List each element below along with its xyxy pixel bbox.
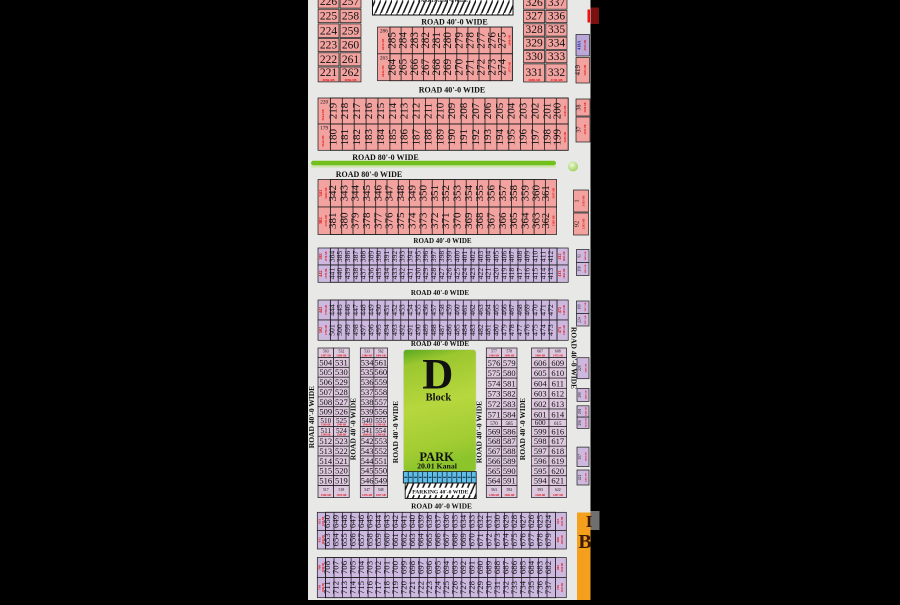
svg-text:20.01 Kanal: 20.01 Kanal bbox=[417, 461, 458, 470]
svg-text:3056-SB: 3056-SB bbox=[344, 78, 357, 82]
svg-text:612: 612 bbox=[551, 389, 564, 399]
svg-text:217: 217 bbox=[351, 102, 363, 119]
svg-text:183: 183 bbox=[363, 128, 375, 145]
svg-text:3434-SB: 3434-SB bbox=[585, 418, 588, 427]
svg-text:5185-SB: 5185-SB bbox=[552, 215, 556, 226]
svg-text:574: 574 bbox=[488, 378, 502, 388]
svg-text:575: 575 bbox=[488, 368, 501, 378]
svg-text:3056-SB: 3056-SB bbox=[322, 78, 335, 82]
svg-text:560: 560 bbox=[374, 367, 387, 377]
svg-text:1285-SB: 1285-SB bbox=[582, 219, 586, 230]
svg-text:473: 473 bbox=[546, 324, 555, 336]
svg-text:621: 621 bbox=[551, 476, 564, 486]
svg-text:188: 188 bbox=[423, 128, 435, 145]
svg-text:535: 535 bbox=[361, 367, 374, 377]
svg-text:356: 356 bbox=[486, 184, 498, 201]
svg-text:328: 328 bbox=[525, 24, 543, 36]
svg-text:370: 370 bbox=[452, 212, 464, 229]
svg-text:3288-SB: 3288-SB bbox=[528, 78, 541, 82]
svg-text:545: 545 bbox=[361, 466, 374, 476]
svg-text:192: 192 bbox=[470, 129, 482, 146]
svg-text:1: 1 bbox=[574, 199, 581, 202]
svg-text:2690-SB: 2690-SB bbox=[508, 35, 512, 46]
svg-text:421: 421 bbox=[578, 475, 582, 481]
svg-text:1405-SB: 1405-SB bbox=[563, 325, 566, 335]
svg-text:345: 345 bbox=[361, 184, 373, 201]
svg-text:358: 358 bbox=[508, 184, 520, 201]
svg-text:608: 608 bbox=[555, 349, 561, 353]
svg-text:531: 531 bbox=[335, 357, 348, 367]
svg-text:592: 592 bbox=[506, 488, 512, 492]
svg-text:624: 624 bbox=[543, 514, 553, 528]
svg-text:605: 605 bbox=[534, 368, 547, 378]
svg-text:37: 37 bbox=[577, 127, 583, 133]
svg-text:200: 200 bbox=[551, 102, 563, 119]
svg-text:553: 553 bbox=[374, 436, 387, 446]
svg-text:203: 203 bbox=[518, 102, 530, 119]
svg-text:211: 211 bbox=[423, 103, 435, 119]
svg-text:225: 225 bbox=[320, 11, 338, 23]
svg-text:514: 514 bbox=[319, 456, 333, 466]
svg-text:209: 209 bbox=[446, 102, 458, 119]
svg-text:341: 341 bbox=[318, 189, 323, 197]
svg-text:365: 365 bbox=[508, 212, 520, 229]
svg-text:1269-SB: 1269-SB bbox=[504, 494, 514, 497]
svg-text:549: 549 bbox=[374, 476, 387, 486]
svg-text:214: 214 bbox=[387, 102, 399, 119]
svg-text:349: 349 bbox=[406, 184, 418, 201]
svg-text:589: 589 bbox=[503, 456, 516, 466]
svg-text:210: 210 bbox=[434, 102, 446, 119]
svg-text:509: 509 bbox=[319, 407, 332, 417]
svg-text:219: 219 bbox=[327, 102, 339, 119]
svg-text:709: 709 bbox=[317, 565, 321, 570]
svg-text:603: 603 bbox=[534, 389, 547, 399]
svg-text:419: 419 bbox=[574, 64, 582, 75]
svg-text:505: 505 bbox=[319, 367, 332, 377]
svg-text:623: 623 bbox=[556, 519, 560, 524]
svg-text:ROAD 40'-0 WIDE: ROAD 40'-0 WIDE bbox=[518, 398, 527, 460]
svg-text:379: 379 bbox=[350, 212, 362, 229]
svg-text:563: 563 bbox=[491, 488, 497, 492]
svg-text:473: 473 bbox=[557, 327, 562, 333]
svg-text:202: 202 bbox=[530, 103, 542, 120]
svg-text:261: 261 bbox=[342, 54, 360, 66]
svg-text:569: 569 bbox=[488, 426, 501, 436]
svg-text:B: B bbox=[578, 531, 591, 553]
svg-text:191: 191 bbox=[458, 129, 470, 146]
svg-text:189: 189 bbox=[434, 128, 446, 145]
svg-text:346: 346 bbox=[372, 184, 384, 201]
svg-text:506: 506 bbox=[319, 377, 332, 387]
svg-text:504: 504 bbox=[319, 357, 333, 367]
svg-text:550: 550 bbox=[374, 466, 387, 476]
svg-text:ROAD 40'-0 WIDE: ROAD 40'-0 WIDE bbox=[419, 86, 486, 95]
svg-text:3245-SB: 3245-SB bbox=[563, 106, 567, 117]
svg-text:372: 372 bbox=[429, 213, 441, 230]
svg-text:223: 223 bbox=[320, 40, 338, 52]
svg-text:336: 336 bbox=[548, 11, 566, 23]
svg-text:1405-SB: 1405-SB bbox=[563, 305, 566, 315]
svg-text:532: 532 bbox=[339, 349, 345, 353]
svg-text:515: 515 bbox=[319, 466, 332, 476]
svg-text:374: 374 bbox=[406, 212, 418, 229]
svg-text:559: 559 bbox=[374, 377, 387, 387]
svg-text:584: 584 bbox=[503, 409, 517, 419]
svg-text:413: 413 bbox=[557, 271, 562, 277]
svg-text:291: 291 bbox=[578, 409, 582, 415]
svg-text:587: 587 bbox=[503, 436, 516, 446]
svg-text:618: 618 bbox=[551, 446, 564, 456]
svg-text:536: 536 bbox=[361, 377, 374, 387]
svg-text:533: 533 bbox=[364, 349, 370, 353]
svg-text:5187-SB: 5187-SB bbox=[552, 188, 556, 199]
svg-text:591: 591 bbox=[503, 476, 516, 486]
svg-text:ROAD 40'-0 WIDE: ROAD 40'-0 WIDE bbox=[391, 401, 400, 463]
svg-text:368: 368 bbox=[474, 212, 486, 229]
svg-text:260: 260 bbox=[342, 40, 360, 52]
svg-text:259: 259 bbox=[342, 25, 360, 37]
svg-text:207: 207 bbox=[470, 102, 482, 119]
svg-text:568: 568 bbox=[488, 436, 501, 446]
svg-text:1100-SB: 1100-SB bbox=[561, 563, 564, 572]
svg-text:502: 502 bbox=[318, 327, 323, 333]
svg-text:528: 528 bbox=[335, 387, 348, 397]
svg-text:3103-SB: 3103-SB bbox=[584, 124, 587, 134]
svg-text:610: 610 bbox=[551, 368, 564, 378]
svg-text:367: 367 bbox=[486, 212, 498, 229]
svg-text:369: 369 bbox=[463, 212, 475, 229]
svg-text:Block: Block bbox=[426, 393, 452, 404]
svg-text:222: 222 bbox=[320, 54, 338, 66]
svg-text:361: 361 bbox=[541, 185, 552, 201]
svg-text:558: 558 bbox=[374, 387, 387, 397]
svg-text:513: 513 bbox=[319, 446, 332, 456]
svg-text:1287-SB: 1287-SB bbox=[553, 494, 563, 497]
svg-text:586: 586 bbox=[503, 426, 516, 436]
svg-text:5185-SB: 5185-SB bbox=[582, 196, 586, 207]
svg-text:334: 334 bbox=[548, 37, 566, 49]
svg-text:552: 552 bbox=[374, 446, 387, 456]
svg-text:354: 354 bbox=[463, 184, 475, 201]
svg-text:682: 682 bbox=[556, 565, 560, 570]
svg-text:572: 572 bbox=[488, 399, 501, 409]
svg-text:366: 366 bbox=[497, 212, 509, 229]
svg-text:3130-SB: 3130-SB bbox=[550, 78, 563, 82]
svg-text:181: 181 bbox=[339, 129, 351, 146]
svg-text:3324-SB: 3324-SB bbox=[321, 135, 325, 147]
svg-text:ROAD 40'-0 WIDE: ROAD 40'-0 WIDE bbox=[411, 340, 470, 348]
svg-text:330: 330 bbox=[525, 51, 543, 63]
svg-text:357: 357 bbox=[497, 184, 509, 201]
svg-text:522: 522 bbox=[335, 446, 348, 456]
svg-text:383: 383 bbox=[318, 253, 323, 259]
svg-text:567: 567 bbox=[488, 446, 501, 456]
svg-text:566: 566 bbox=[488, 456, 501, 466]
svg-text:335: 335 bbox=[548, 24, 566, 36]
svg-text:270: 270 bbox=[453, 58, 465, 75]
svg-text:93: 93 bbox=[578, 254, 582, 258]
svg-text:257: 257 bbox=[342, 0, 360, 8]
svg-text:601: 601 bbox=[534, 409, 547, 419]
svg-text:344: 344 bbox=[350, 184, 362, 201]
svg-text:38: 38 bbox=[577, 105, 583, 111]
svg-text:267: 267 bbox=[420, 58, 432, 75]
svg-text:573: 573 bbox=[488, 389, 501, 399]
svg-text:562: 562 bbox=[378, 349, 384, 353]
svg-text:607: 607 bbox=[537, 349, 543, 353]
svg-text:92: 92 bbox=[574, 221, 581, 228]
svg-text:609: 609 bbox=[551, 358, 564, 368]
svg-text:357: 357 bbox=[578, 454, 582, 460]
svg-text:193: 193 bbox=[482, 128, 494, 145]
svg-text:1296-SB: 1296-SB bbox=[489, 494, 499, 497]
svg-text:196: 196 bbox=[518, 128, 530, 145]
svg-text:682: 682 bbox=[543, 561, 553, 574]
svg-text:353: 353 bbox=[452, 184, 464, 201]
svg-text:1476-SB: 1476-SB bbox=[362, 494, 372, 497]
svg-text:561: 561 bbox=[374, 357, 387, 367]
svg-text:187: 187 bbox=[411, 128, 423, 145]
svg-text:185: 185 bbox=[387, 128, 399, 145]
svg-text:225: 225 bbox=[578, 365, 582, 371]
svg-text:279: 279 bbox=[453, 32, 465, 49]
svg-text:546: 546 bbox=[361, 476, 374, 486]
svg-text:258: 258 bbox=[342, 11, 360, 23]
svg-text:1403-SB: 1403-SB bbox=[585, 452, 588, 461]
svg-text:376: 376 bbox=[384, 212, 396, 229]
svg-text:351: 351 bbox=[429, 185, 441, 202]
svg-text:206: 206 bbox=[482, 102, 494, 119]
svg-text:199: 199 bbox=[578, 304, 582, 310]
svg-text:599: 599 bbox=[534, 426, 547, 436]
svg-text:1107-SB: 1107-SB bbox=[561, 583, 564, 592]
svg-text:548: 548 bbox=[378, 488, 384, 492]
svg-text:614: 614 bbox=[551, 409, 565, 419]
svg-text:598: 598 bbox=[534, 436, 547, 446]
svg-text:215: 215 bbox=[375, 102, 387, 119]
svg-text:213: 213 bbox=[399, 102, 411, 119]
svg-text:195: 195 bbox=[506, 128, 518, 145]
svg-text:2612-SB: 2612-SB bbox=[381, 65, 385, 77]
svg-text:2612-SB: 2612-SB bbox=[381, 38, 385, 50]
svg-text:3245-SB: 3245-SB bbox=[563, 132, 567, 143]
svg-text:518: 518 bbox=[339, 488, 345, 492]
svg-text:282: 282 bbox=[420, 32, 432, 49]
svg-text:1463-SB: 1463-SB bbox=[563, 251, 566, 261]
svg-text:184: 184 bbox=[375, 128, 387, 145]
svg-text:710: 710 bbox=[317, 585, 321, 590]
svg-text:380: 380 bbox=[338, 212, 350, 229]
svg-text:538: 538 bbox=[361, 397, 374, 407]
svg-text:350: 350 bbox=[418, 184, 430, 201]
svg-text:534: 534 bbox=[361, 357, 375, 367]
svg-text:738: 738 bbox=[556, 585, 560, 590]
svg-text:3317-SB: 3317-SB bbox=[584, 302, 587, 311]
svg-text:564: 564 bbox=[488, 476, 502, 486]
svg-text:606: 606 bbox=[534, 358, 547, 368]
svg-text:1617-SB: 1617-SB bbox=[561, 517, 564, 526]
svg-text:348: 348 bbox=[395, 184, 407, 201]
svg-text:256: 256 bbox=[578, 420, 582, 426]
svg-text:1519-SB: 1519-SB bbox=[336, 494, 346, 497]
svg-text:197: 197 bbox=[530, 128, 542, 145]
svg-text:472: 472 bbox=[557, 307, 562, 313]
svg-text:1103-SB: 1103-SB bbox=[561, 535, 564, 544]
svg-text:622: 622 bbox=[555, 488, 561, 492]
svg-text:620: 620 bbox=[551, 466, 564, 476]
svg-text:371: 371 bbox=[440, 213, 452, 230]
svg-text:212: 212 bbox=[411, 103, 423, 120]
svg-text:517: 517 bbox=[323, 488, 329, 492]
svg-text:583: 583 bbox=[503, 399, 516, 409]
svg-text:443: 443 bbox=[318, 307, 323, 313]
svg-text:543: 543 bbox=[361, 446, 374, 456]
svg-text:355: 355 bbox=[474, 184, 486, 201]
svg-text:597: 597 bbox=[534, 446, 547, 456]
svg-text:199: 199 bbox=[551, 128, 563, 145]
svg-text:2973-SB: 2973-SB bbox=[508, 62, 512, 73]
svg-text:337: 337 bbox=[548, 0, 566, 9]
svg-text:382: 382 bbox=[318, 217, 323, 225]
svg-text:ROAD 40'-0 WIDE: ROAD 40'-0 WIDE bbox=[413, 237, 472, 245]
svg-text:342: 342 bbox=[327, 185, 339, 202]
svg-text:527: 527 bbox=[335, 397, 348, 407]
svg-text:578: 578 bbox=[506, 349, 512, 353]
svg-text:204: 204 bbox=[506, 102, 518, 119]
svg-text:593: 593 bbox=[537, 488, 543, 492]
svg-text:503: 503 bbox=[323, 349, 329, 353]
svg-text:1228-SB: 1228-SB bbox=[535, 494, 545, 497]
svg-text:576: 576 bbox=[488, 358, 501, 368]
svg-text:604: 604 bbox=[534, 378, 548, 388]
svg-text:1457-SB: 1457-SB bbox=[376, 494, 386, 497]
svg-text:581: 581 bbox=[503, 378, 516, 388]
svg-text:3425-SB: 3425-SB bbox=[583, 65, 587, 76]
svg-text:PARKING 40'-0 WIDE: PARKING 40'-0 WIDE bbox=[412, 490, 468, 496]
svg-text:520: 520 bbox=[335, 466, 348, 476]
svg-text:679: 679 bbox=[543, 533, 553, 547]
svg-text:373: 373 bbox=[418, 212, 430, 229]
svg-text:596: 596 bbox=[534, 456, 547, 466]
svg-text:226: 226 bbox=[320, 0, 338, 8]
svg-text:290: 290 bbox=[578, 392, 582, 398]
svg-text:580: 580 bbox=[503, 368, 516, 378]
svg-text:413: 413 bbox=[546, 268, 555, 280]
svg-text:ROAD 80'-0 WIDE: ROAD 80'-0 WIDE bbox=[352, 153, 419, 162]
svg-text:378: 378 bbox=[361, 212, 373, 229]
svg-text:362: 362 bbox=[541, 213, 552, 229]
svg-text:1405-SB: 1405-SB bbox=[585, 390, 588, 399]
svg-text:595: 595 bbox=[534, 466, 547, 476]
svg-text:418A: 418A bbox=[577, 41, 582, 50]
svg-text:680: 680 bbox=[556, 537, 560, 542]
svg-text:ROAD 40'-0 WIDE: ROAD 40'-0 WIDE bbox=[348, 398, 357, 460]
svg-text:333: 333 bbox=[548, 51, 566, 63]
svg-text:377: 377 bbox=[372, 212, 384, 229]
svg-text:571: 571 bbox=[488, 409, 501, 419]
svg-text:1403-SB: 1403-SB bbox=[584, 264, 587, 273]
svg-text:613: 613 bbox=[551, 399, 564, 409]
svg-text:3517-SB: 3517-SB bbox=[584, 315, 587, 324]
svg-text:507: 507 bbox=[319, 387, 332, 397]
svg-text:557: 557 bbox=[374, 397, 387, 407]
svg-text:512: 512 bbox=[319, 436, 332, 446]
svg-text:542: 542 bbox=[361, 436, 374, 446]
svg-text:4325-SB: 4325-SB bbox=[583, 40, 587, 51]
svg-text:529: 529 bbox=[335, 377, 348, 387]
svg-text:652: 652 bbox=[317, 537, 321, 542]
svg-text:218: 218 bbox=[339, 102, 351, 119]
svg-text:194: 194 bbox=[494, 128, 506, 145]
svg-text:472: 472 bbox=[546, 304, 555, 316]
svg-text:ROAD 40'-0 WIDE: ROAD 40'-0 WIDE bbox=[411, 502, 472, 511]
svg-text:526: 526 bbox=[335, 407, 348, 417]
svg-text:182: 182 bbox=[351, 129, 363, 146]
svg-text:617: 617 bbox=[551, 436, 564, 446]
svg-text:1463-SB: 1463-SB bbox=[563, 268, 566, 278]
svg-text:359: 359 bbox=[519, 184, 531, 201]
svg-text:3405-SB: 3405-SB bbox=[585, 363, 588, 372]
svg-text:594: 594 bbox=[534, 476, 548, 486]
svg-text:381: 381 bbox=[327, 213, 339, 230]
svg-text:352: 352 bbox=[440, 185, 452, 202]
svg-text:1403-SB: 1403-SB bbox=[585, 473, 588, 482]
svg-text:D: D bbox=[422, 351, 453, 398]
svg-text:158: 158 bbox=[578, 266, 582, 272]
svg-text:582: 582 bbox=[503, 389, 516, 399]
svg-text:616: 616 bbox=[551, 426, 564, 436]
svg-text:519: 519 bbox=[335, 476, 348, 486]
svg-text:521: 521 bbox=[335, 456, 348, 466]
svg-text:PARKING 30'-0 WIDE: PARKING 30'-0 WIDE bbox=[418, 0, 469, 4]
svg-text:619: 619 bbox=[551, 456, 564, 466]
svg-text:556: 556 bbox=[374, 407, 387, 417]
svg-text:537: 537 bbox=[361, 387, 374, 397]
svg-text:205: 205 bbox=[494, 102, 506, 119]
svg-text:577: 577 bbox=[491, 349, 497, 353]
svg-text:327: 327 bbox=[525, 11, 543, 23]
svg-text:737: 737 bbox=[543, 580, 553, 594]
svg-text:539: 539 bbox=[361, 407, 374, 417]
svg-text:602: 602 bbox=[534, 399, 547, 409]
svg-text:442: 442 bbox=[318, 270, 323, 276]
svg-text:565: 565 bbox=[488, 466, 501, 476]
svg-text:551: 551 bbox=[374, 456, 387, 466]
svg-text:180: 180 bbox=[327, 128, 339, 145]
svg-text:190: 190 bbox=[446, 128, 458, 145]
svg-text:3324-SB: 3324-SB bbox=[321, 108, 325, 120]
svg-text:186: 186 bbox=[399, 128, 411, 145]
svg-text:412: 412 bbox=[546, 251, 555, 263]
svg-text:216: 216 bbox=[363, 102, 375, 119]
svg-text:590: 590 bbox=[503, 466, 516, 476]
svg-text:329: 329 bbox=[525, 37, 543, 49]
svg-text:544: 544 bbox=[361, 456, 375, 466]
svg-text:ROAD 40'-0 WIDE: ROAD 40'-0 WIDE bbox=[411, 289, 470, 297]
svg-text:ROAD 40'-0 WIDE: ROAD 40'-0 WIDE bbox=[307, 386, 316, 448]
svg-text:523: 523 bbox=[335, 436, 348, 446]
svg-text:364: 364 bbox=[519, 212, 531, 229]
svg-text:224: 224 bbox=[578, 317, 582, 323]
svg-text:588: 588 bbox=[503, 446, 516, 456]
svg-text:1403-SB: 1403-SB bbox=[585, 407, 588, 416]
svg-text:I: I bbox=[586, 512, 593, 531]
svg-text:530: 530 bbox=[335, 367, 348, 377]
svg-text:516: 516 bbox=[319, 476, 332, 486]
svg-text:224: 224 bbox=[320, 25, 338, 37]
svg-text:375: 375 bbox=[395, 212, 407, 229]
